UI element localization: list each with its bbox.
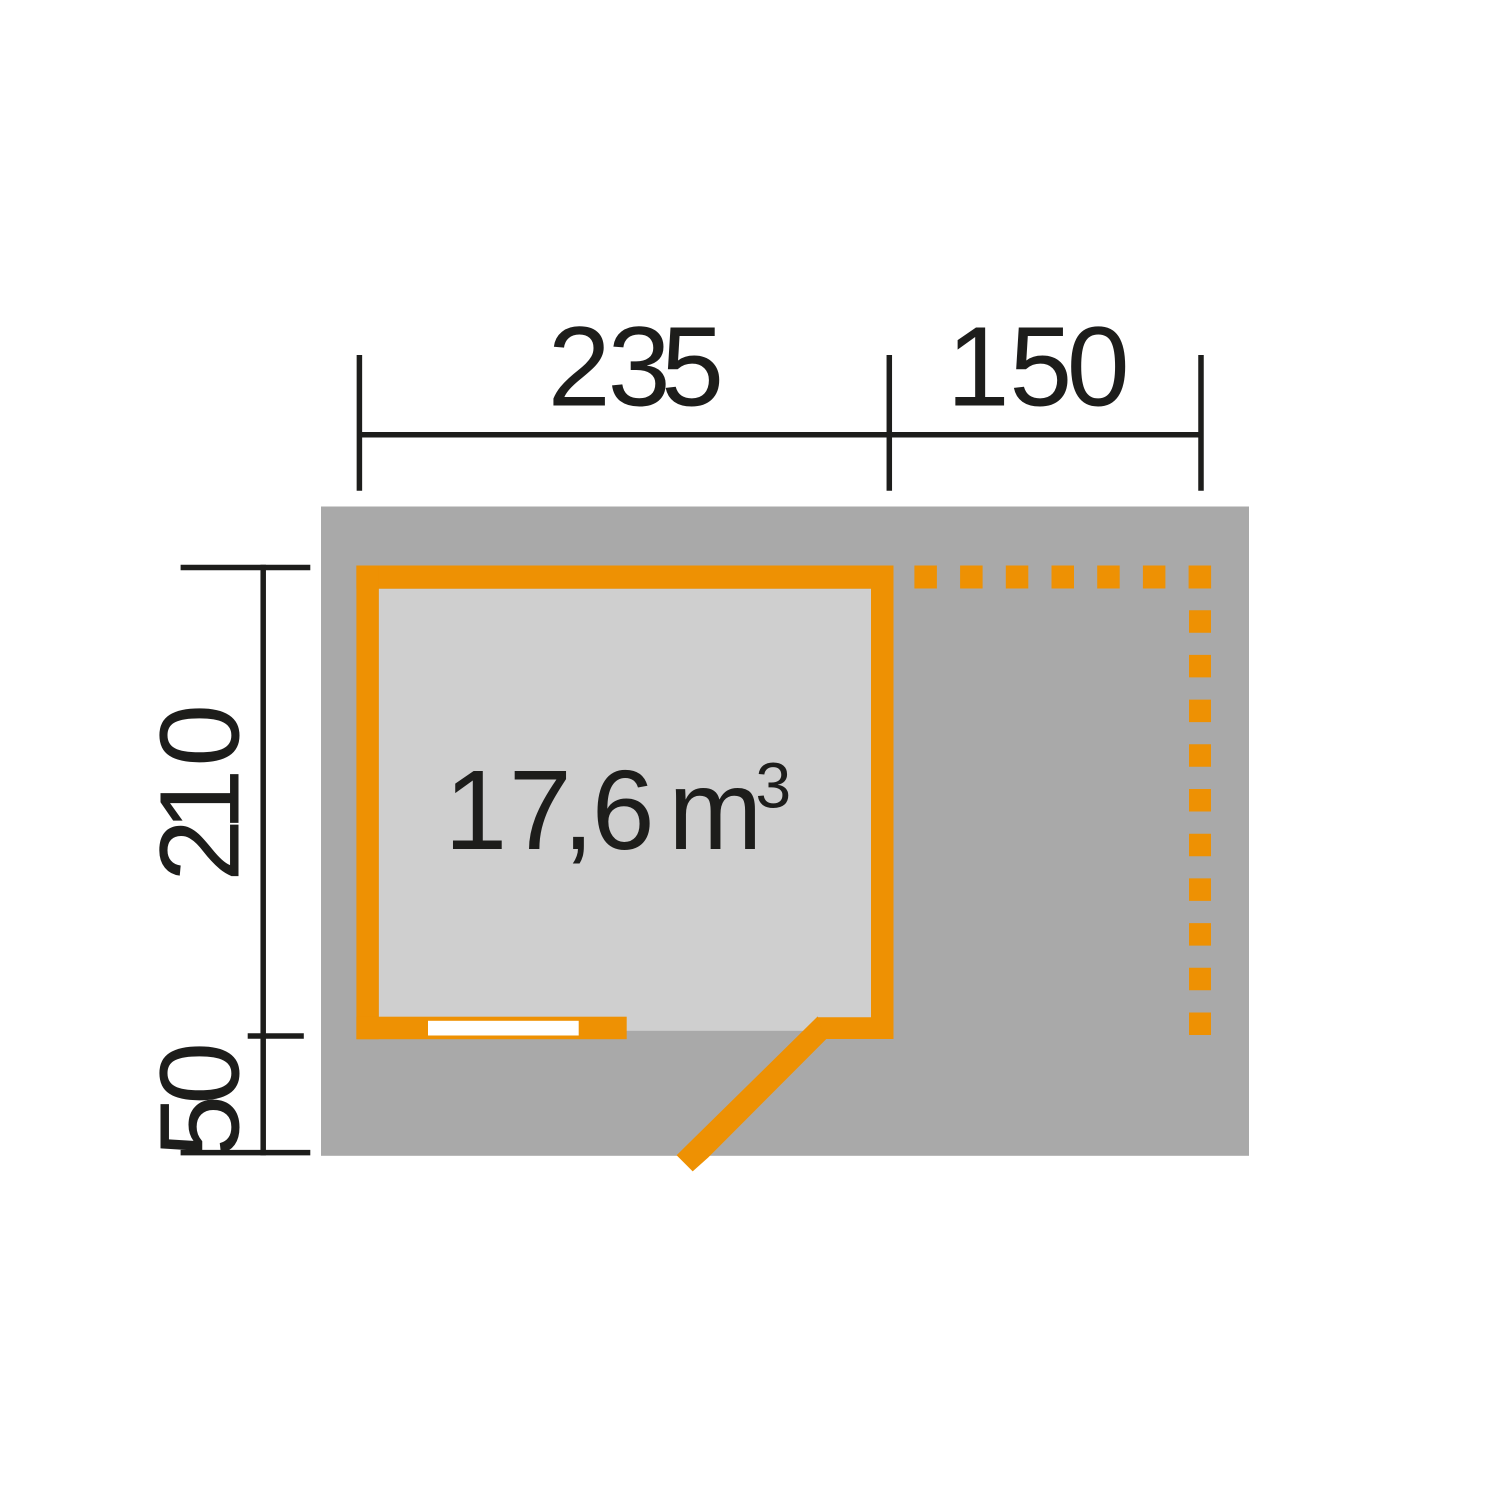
svg-text:0: 0 xyxy=(136,1042,262,1105)
svg-text:2: 2 xyxy=(548,304,611,430)
svg-text:3: 3 xyxy=(756,750,792,822)
svg-text:1: 1 xyxy=(947,304,1010,430)
svg-text:0: 0 xyxy=(136,704,262,767)
svg-text:1: 1 xyxy=(444,747,507,873)
svg-text:6: 6 xyxy=(592,747,655,873)
svg-text:5: 5 xyxy=(661,304,724,430)
svg-text:5: 5 xyxy=(1009,304,1072,430)
svg-text:,: , xyxy=(563,747,594,873)
svg-text:m: m xyxy=(668,747,762,873)
svg-text:1: 1 xyxy=(136,769,262,832)
svg-text:0: 0 xyxy=(1067,304,1130,430)
